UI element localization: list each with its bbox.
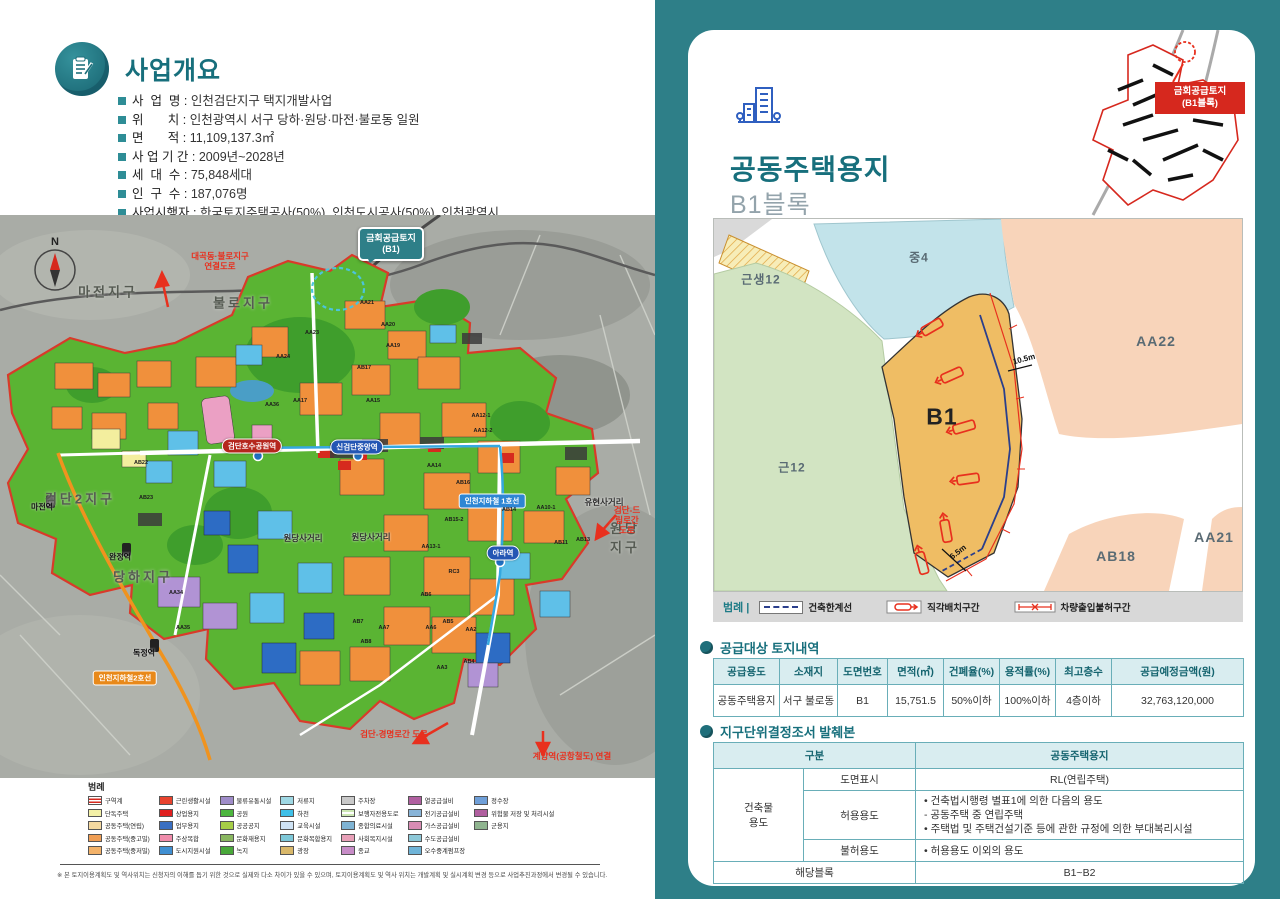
supply-col-header: 소재지 bbox=[780, 659, 838, 685]
legend-item: 녹지 bbox=[220, 846, 272, 855]
legend-item: 공원 bbox=[220, 809, 272, 818]
site-plan-legend: 범례 | 건축한계선 직각배치구간 bbox=[713, 592, 1243, 622]
legend-item: 종합의료시설 bbox=[341, 821, 399, 830]
legend-swatch bbox=[220, 809, 234, 818]
legend-item-label: 저류지 bbox=[297, 796, 314, 805]
legend-item-label: 위험물 저장 및 처리시설 bbox=[491, 809, 554, 818]
legend-swatch bbox=[88, 821, 102, 830]
overview-item-label: 위 치 bbox=[132, 111, 179, 130]
legend-swatch bbox=[280, 834, 294, 843]
map-legend-title: 범례 bbox=[88, 780, 105, 793]
supply-cell: 공동주택용지 bbox=[714, 685, 780, 717]
legend-item: 정수장 bbox=[474, 796, 554, 805]
legend-item-label: 수도공급설비 bbox=[425, 834, 460, 843]
left-page: 사업개요 사 업 명 : 인천검단지구 택지개발사업위 치 : 인천광역시 서구… bbox=[0, 0, 655, 899]
legend-item-label: 구역계 bbox=[105, 796, 122, 805]
legend-item-label: 가스공급설비 bbox=[425, 821, 460, 830]
row-label: 불허용도 bbox=[804, 840, 916, 862]
legend-item-label: 물류유통시설 bbox=[237, 796, 272, 805]
legend-item: 구역계 bbox=[88, 796, 150, 805]
right-page: 공동주택용지 B1블록 bbox=[655, 0, 1280, 899]
overview-item-label: 사 업 명 bbox=[132, 92, 180, 111]
overview-item: 위 치 : 인천광역시 서구 당하·원당·마전·불로동 일원 bbox=[118, 111, 499, 130]
legend-swatch bbox=[159, 796, 173, 805]
legend-item: 보행자전용도로 bbox=[341, 809, 399, 818]
legend-swatch bbox=[220, 796, 234, 805]
district-table-section: 지구단위결정조서 발췌본 bbox=[700, 722, 855, 741]
legend-item-label: 단독주택 bbox=[105, 809, 128, 818]
legend-item: 상업용지 bbox=[159, 809, 211, 818]
legend-item: 공동주택(중고밀) bbox=[88, 834, 150, 843]
legend-item: 근린생활시설 bbox=[159, 796, 211, 805]
legend-swatch bbox=[88, 809, 102, 818]
supply-cell: 50%이하 bbox=[944, 685, 1000, 717]
overview-item-value: 2009년~2028년 bbox=[199, 148, 285, 167]
legend-item: 문화재용지 bbox=[220, 834, 272, 843]
legend-item: 광장 bbox=[280, 846, 332, 855]
group-label: 건축물 용도 bbox=[714, 769, 804, 862]
supply-col-header: 도면번호 bbox=[838, 659, 888, 685]
no-vehicle-access-icon bbox=[1014, 601, 1056, 613]
legend-item-label: 공동주택(연립) bbox=[105, 821, 144, 830]
bullet-square-icon bbox=[118, 97, 126, 105]
overview-item-colon: : bbox=[180, 92, 190, 111]
legend-item: 저류지 bbox=[280, 796, 332, 805]
legend-item: 업무용지 bbox=[159, 821, 211, 830]
legend-item-label: 종교 bbox=[358, 846, 370, 855]
legend-item-label: 문화재용지 bbox=[237, 834, 266, 843]
legend-item-label: 하천 bbox=[297, 809, 309, 818]
legend-item-label: 근린생활시설 bbox=[176, 796, 211, 805]
overview-item-value: 75,848세대 bbox=[191, 166, 252, 185]
divider bbox=[60, 864, 600, 865]
legend-item-label: 사회복지시설 bbox=[358, 834, 393, 843]
overview-item-colon: : bbox=[179, 129, 189, 148]
card-subtitle: B1블록 bbox=[730, 185, 811, 221]
b1-card: 공동주택용지 B1블록 bbox=[688, 30, 1255, 886]
col-header-right: 공동주택용지 bbox=[916, 743, 1244, 769]
supply-col-header: 공급용도 bbox=[714, 659, 780, 685]
landuse-map: N마전지구불로지구검단2지구당하지구원당지구원당사거리원당사거리유현사거리검단호… bbox=[0, 215, 655, 778]
supply-col-header: 최고층수 bbox=[1056, 659, 1112, 685]
supply-cell: 15,751.5 bbox=[888, 685, 944, 717]
district-table: 구분 공동주택용지 건축물 용도 도면표시 RL(연립주택) 허용용도 • 건축… bbox=[713, 742, 1244, 884]
legend-swatch bbox=[341, 809, 355, 818]
legend-item-label: 공원 bbox=[237, 809, 249, 818]
legend-swatch bbox=[474, 821, 488, 830]
legend-item: 수도공급설비 bbox=[408, 834, 466, 843]
legend-swatch bbox=[280, 821, 294, 830]
legend-swatch bbox=[159, 834, 173, 843]
legend-swatch bbox=[159, 846, 173, 855]
overview-item-value: 인천광역시 서구 당하·원당·마전·불로동 일원 bbox=[190, 111, 420, 130]
supply-table-title: 공급대상 토지내역 bbox=[720, 638, 819, 657]
legend-item: 교육시설 bbox=[280, 821, 332, 830]
overview-item-colon: : bbox=[188, 148, 198, 167]
overview-item-label: 면 적 bbox=[132, 129, 179, 148]
overview-item-colon: : bbox=[179, 111, 189, 130]
legend-item: 공동주택(연립) bbox=[88, 821, 150, 830]
bullet-square-icon bbox=[118, 116, 126, 124]
overview-item-value: 인천검단지구 택지개발사업 bbox=[191, 92, 332, 111]
overview-list: 사 업 명 : 인천검단지구 택지개발사업위 치 : 인천광역시 서구 당하·원… bbox=[118, 92, 499, 222]
section-bullet-icon bbox=[700, 641, 713, 654]
map-footnote: ※ 본 토지이용계획도 및 역사위치는 신청자의 이해를 돕기 위한 것으로 실… bbox=[57, 870, 617, 879]
legend-item: 공공공지 bbox=[220, 821, 272, 830]
overview-item-label: 세 대 수 bbox=[132, 166, 180, 185]
legend-item: 주차장 bbox=[341, 796, 399, 805]
supply-cell: 서구 불로동 bbox=[780, 685, 838, 717]
district-table-title: 지구단위결정조서 발췌본 bbox=[720, 722, 855, 741]
card-title: 공동주택용지 bbox=[730, 148, 891, 188]
legend-item: 군용지 bbox=[474, 821, 554, 830]
legend-item-label: 전기공급설비 bbox=[425, 809, 460, 818]
legend-item-label: 녹지 bbox=[237, 846, 249, 855]
supply-cell: 32,763,120,000 bbox=[1112, 685, 1244, 717]
supply-col-header: 공급예정금액(원) bbox=[1112, 659, 1244, 685]
overview-item: 인 구 수 : 187,076명 bbox=[118, 185, 499, 204]
legend-item-label: 상업용지 bbox=[176, 809, 199, 818]
legend-item-label: 주차장 bbox=[358, 796, 375, 805]
legend-item-label: 도시지원시설 bbox=[176, 846, 211, 855]
legend-item-label: 교육시설 bbox=[297, 821, 320, 830]
overview-item-value: 11,109,137.3㎡ bbox=[190, 129, 275, 148]
supply-cell: B1 bbox=[838, 685, 888, 717]
overview-item-colon: : bbox=[180, 185, 190, 204]
perpendicular-placement-icon bbox=[886, 600, 922, 614]
section-bullet-icon bbox=[700, 725, 713, 738]
legend-swatch bbox=[220, 834, 234, 843]
row-value: RL(연립주택) bbox=[916, 769, 1244, 791]
legend-swatch bbox=[220, 821, 234, 830]
legend-item: 오수중계펌프장 bbox=[408, 846, 466, 855]
legend-item-label: 정수장 bbox=[491, 796, 508, 805]
overview-item: 면 적 : 11,109,137.3㎡ bbox=[118, 129, 499, 148]
bullet-square-icon bbox=[118, 171, 126, 179]
legend-item: 문화복합용지 bbox=[280, 834, 332, 843]
legend-swatch bbox=[408, 796, 422, 805]
legend-swatch bbox=[88, 846, 102, 855]
legend-swatch bbox=[88, 834, 102, 843]
supply-table: 공급용도소재지도면번호면적(㎡)건폐율(%)용적률(%)최고층수공급예정금액(원… bbox=[713, 658, 1244, 717]
overview-item: 사 업 기 간 : 2009년~2028년 bbox=[118, 148, 499, 167]
legend-item: 주상복합 bbox=[159, 834, 211, 843]
landuse-map-graphic bbox=[0, 215, 655, 778]
legend-item-label: 업무용지 bbox=[176, 821, 199, 830]
footer-value: B1~B2 bbox=[916, 862, 1244, 884]
legend-item-label: 광장 bbox=[297, 846, 309, 855]
legend-item-label: 공공공지 bbox=[237, 821, 260, 830]
legend-item-label: 종합의료시설 bbox=[358, 821, 393, 830]
supply-col-header: 면적(㎡) bbox=[888, 659, 944, 685]
legend-item: 사회복지시설 bbox=[341, 834, 399, 843]
legend-item-label: 주상복합 bbox=[176, 834, 199, 843]
site-plan-legend-title: 범례 | bbox=[723, 599, 749, 615]
legend-item-label: 보행자전용도로 bbox=[358, 809, 399, 818]
legend-item-label: 열공급설비 bbox=[425, 796, 454, 805]
legend-column: 열공급설비전기공급설비가스공급설비수도공급설비오수중계펌프장 bbox=[408, 796, 466, 855]
overview-item-colon: : bbox=[180, 166, 190, 185]
legend-column: 구역계단독주택공동주택(연립)공동주택(중고밀)공동주택(중저밀) bbox=[88, 796, 150, 855]
legend-column: 주차장보행자전용도로종합의료시설사회복지시설종교 bbox=[341, 796, 399, 855]
legend-item: 단독주택 bbox=[88, 809, 150, 818]
brochure-spread: 사업개요 사 업 명 : 인천검단지구 택지개발사업위 치 : 인천광역시 서구… bbox=[0, 0, 1280, 899]
supply-cell: 4층이하 bbox=[1056, 685, 1112, 717]
minimap-tag: 금회공급토지 (B1블록) bbox=[1155, 82, 1245, 114]
row-label: 허용용도 bbox=[804, 791, 916, 840]
row-label: 도면표시 bbox=[804, 769, 916, 791]
building-icon bbox=[736, 82, 782, 135]
legend-item: 도시지원시설 bbox=[159, 846, 211, 855]
legend-swatch bbox=[159, 809, 173, 818]
supply-table-section: 공급대상 토지내역 bbox=[700, 638, 819, 657]
overview-header: 사업개요 bbox=[55, 42, 221, 96]
overview-item-value: 187,076명 bbox=[191, 185, 248, 204]
legend-item: 위험물 저장 및 처리시설 bbox=[474, 809, 554, 818]
legend-item-label: 차량출입불허구간 bbox=[1061, 600, 1131, 614]
supply-col-header: 건폐율(%) bbox=[944, 659, 1000, 685]
legend-item-label: 공동주택(중고밀) bbox=[105, 834, 150, 843]
location-minimap: 금회공급토지 (B1블록) bbox=[1033, 30, 1255, 218]
legend-item-label: 공동주택(중저밀) bbox=[105, 846, 150, 855]
overview-item: 사 업 명 : 인천검단지구 택지개발사업 bbox=[118, 92, 499, 111]
map-legend: 범례 구역계단독주택공동주택(연립)공동주택(중고밀)공동주택(중저밀)근린생활… bbox=[0, 778, 655, 899]
legend-swatch bbox=[159, 821, 173, 830]
legend-item-label: 오수중계펌프장 bbox=[425, 846, 466, 855]
row-value: • 건축법시행령 별표1에 의한 다음의 용도 - 공동주택 중 연립주택 • … bbox=[916, 791, 1244, 840]
legend-item: 전기공급설비 bbox=[408, 809, 466, 818]
legend-item-label: 군용지 bbox=[491, 821, 508, 830]
bullet-square-icon bbox=[118, 134, 126, 142]
supply-col-header: 용적률(%) bbox=[1000, 659, 1056, 685]
legend-item: 공동주택(중저밀) bbox=[88, 846, 150, 855]
legend-column: 정수장위험물 저장 및 처리시설군용지 bbox=[474, 796, 554, 855]
b1-callout: 금회공급토지 (B1) bbox=[358, 227, 424, 261]
legend-item: 하천 bbox=[280, 809, 332, 818]
legend-swatch bbox=[280, 796, 294, 805]
col-header-left: 구분 bbox=[714, 743, 916, 769]
legend-swatch bbox=[280, 809, 294, 818]
overview-item-label: 사 업 기 간 bbox=[132, 148, 188, 167]
bullet-square-icon bbox=[118, 153, 126, 161]
overview-item: 세 대 수 : 75,848세대 bbox=[118, 166, 499, 185]
legend-swatch bbox=[341, 846, 355, 855]
row-value: • 허용용도 이외의 용도 bbox=[916, 840, 1244, 862]
legend-swatch bbox=[280, 846, 294, 855]
legend-item-label: 문화복합용지 bbox=[297, 834, 332, 843]
legend-swatch bbox=[408, 846, 422, 855]
building-limit-line-icon bbox=[759, 601, 803, 614]
legend-swatch bbox=[341, 821, 355, 830]
legend-column: 근린생활시설상업용지업무용지주상복합도시지원시설 bbox=[159, 796, 211, 855]
footer-label: 해당블록 bbox=[714, 862, 916, 884]
site-plan: 근생12 중4 AA22 근12 B1 AB18 AA21 10.5m 6.5m bbox=[713, 218, 1243, 592]
notepad-icon bbox=[55, 42, 109, 96]
legend-item: 열공급설비 bbox=[408, 796, 466, 805]
legend-swatch bbox=[88, 796, 102, 805]
legend-item: 가스공급설비 bbox=[408, 821, 466, 830]
bullet-square-icon bbox=[118, 190, 126, 198]
legend-swatch bbox=[474, 796, 488, 805]
legend-item-label: 직각배치구간 bbox=[927, 600, 979, 614]
legend-swatch bbox=[474, 809, 488, 818]
legend-column: 물류유통시설공원공공공지문화재용지녹지 bbox=[220, 796, 272, 855]
legend-swatch bbox=[408, 821, 422, 830]
overview-title: 사업개요 bbox=[125, 51, 221, 87]
overview-item-label: 인 구 수 bbox=[132, 185, 180, 204]
legend-item: 물류유통시설 bbox=[220, 796, 272, 805]
legend-item: 종교 bbox=[341, 846, 399, 855]
legend-swatch bbox=[220, 846, 234, 855]
legend-swatch bbox=[341, 834, 355, 843]
legend-swatch bbox=[408, 834, 422, 843]
legend-item-label: 건축한계선 bbox=[808, 600, 852, 614]
legend-swatch bbox=[408, 809, 422, 818]
supply-cell: 100%이하 bbox=[1000, 685, 1056, 717]
legend-swatch bbox=[341, 796, 355, 805]
legend-column: 저류지하천교육시설문화복합용지광장 bbox=[280, 796, 332, 855]
